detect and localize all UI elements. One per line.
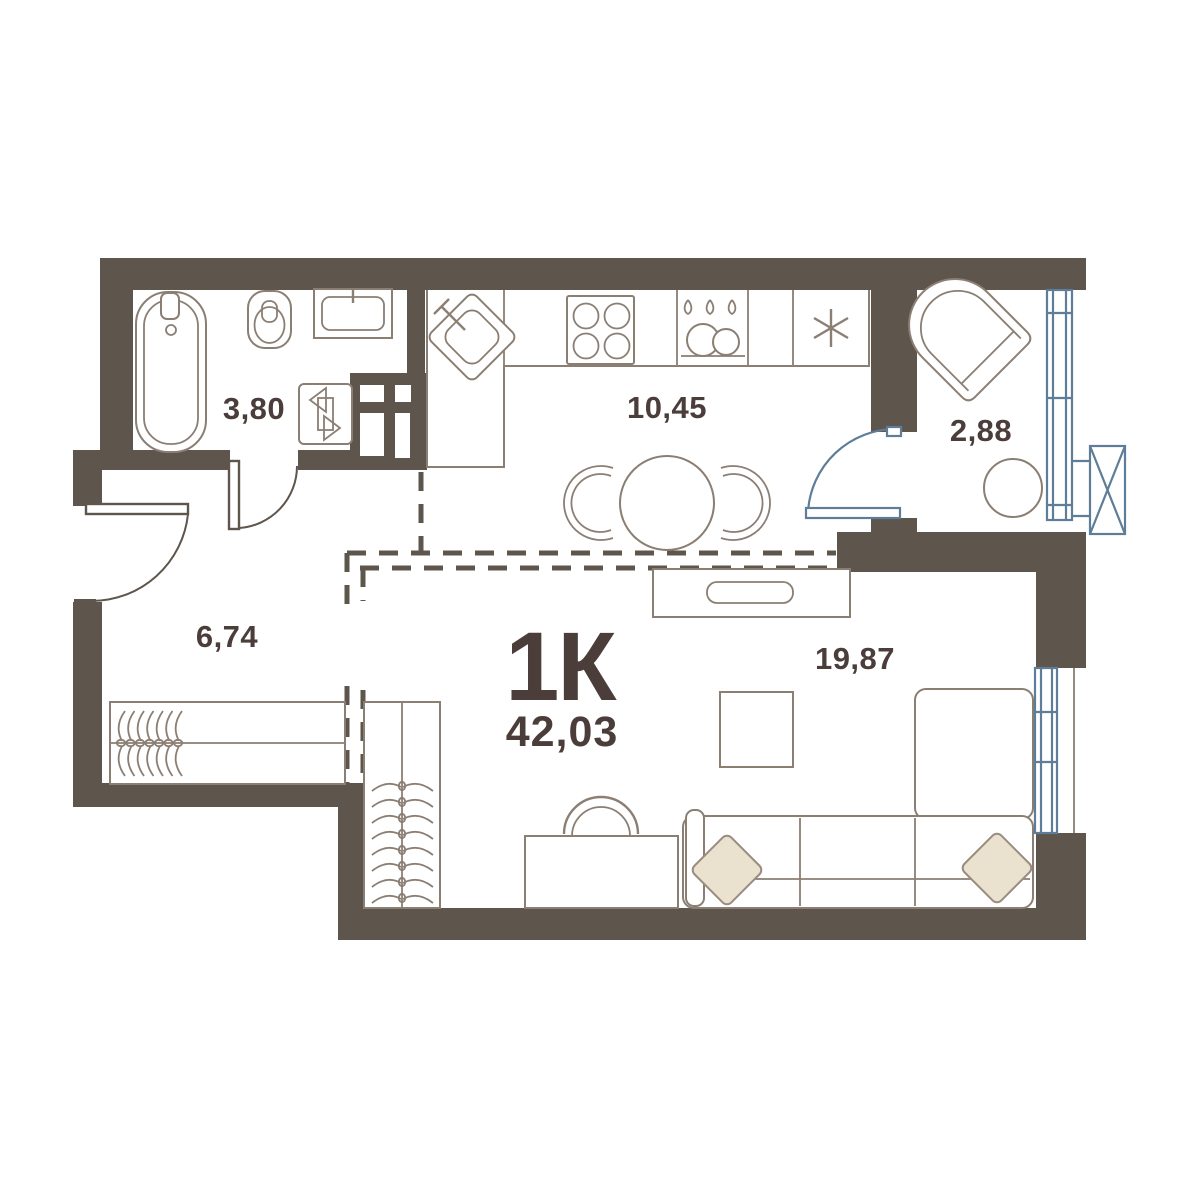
room-label-bathroom: 3,80 — [223, 391, 285, 426]
dining-table-icon — [564, 456, 770, 550]
ac-unit-icon — [1072, 446, 1125, 534]
floor-plan-drawing: 3,80 10,45 2,88 6,74 19,87 1К 42,03 — [0, 0, 1200, 1200]
wall-segment — [100, 290, 133, 452]
dining-chair-icon — [571, 474, 611, 532]
balcony-glazing — [1047, 290, 1072, 520]
shaft-vent-opening — [360, 385, 384, 402]
shaft-vent-opening — [395, 413, 410, 458]
floor-plan-page: 3,80 10,45 2,88 6,74 19,87 1К 42,03 — [0, 0, 1200, 1200]
balcony-door — [806, 427, 901, 518]
tv-stand-icon — [653, 569, 850, 617]
entrance-door — [86, 504, 188, 601]
shaft-vent-opening — [395, 385, 411, 402]
wall-segment — [407, 290, 425, 375]
room-label-balcony: 2,88 — [950, 413, 1012, 448]
desk-chair-icon — [564, 797, 638, 836]
apartment-total-area: 42,03 — [506, 708, 619, 756]
wall-segment — [871, 518, 917, 532]
wall-segment — [837, 532, 1086, 572]
bathtub-icon — [136, 292, 206, 452]
hallway-wardrobe-icon — [110, 702, 345, 784]
desk-icon — [525, 836, 678, 908]
living-wardrobe-icon — [364, 702, 440, 908]
shaft-vent-opening — [360, 413, 384, 456]
dining-chair-icon — [723, 474, 763, 532]
wall-segment — [1036, 833, 1086, 908]
room-label-kitchen: 10,45 — [627, 390, 707, 425]
wall-segment — [1036, 572, 1086, 668]
coffee-table-icon — [720, 692, 793, 767]
toilet-icon — [248, 291, 291, 348]
washing-machine-icon — [299, 384, 352, 444]
room-label-hallway: 6,74 — [196, 619, 259, 654]
wall-segment — [80, 450, 230, 470]
wall-segment — [73, 602, 102, 807]
living-window-glazing — [1035, 668, 1074, 833]
apartment-type-label: 1К — [505, 612, 617, 721]
wall-segment — [338, 908, 1086, 940]
bathroom-door — [229, 461, 297, 529]
round-table-icon — [984, 459, 1042, 517]
wall-segment — [73, 783, 363, 807]
stove-icon — [567, 296, 634, 364]
room-label-living: 19,87 — [815, 641, 895, 676]
bathroom-sink-icon — [314, 289, 392, 338]
